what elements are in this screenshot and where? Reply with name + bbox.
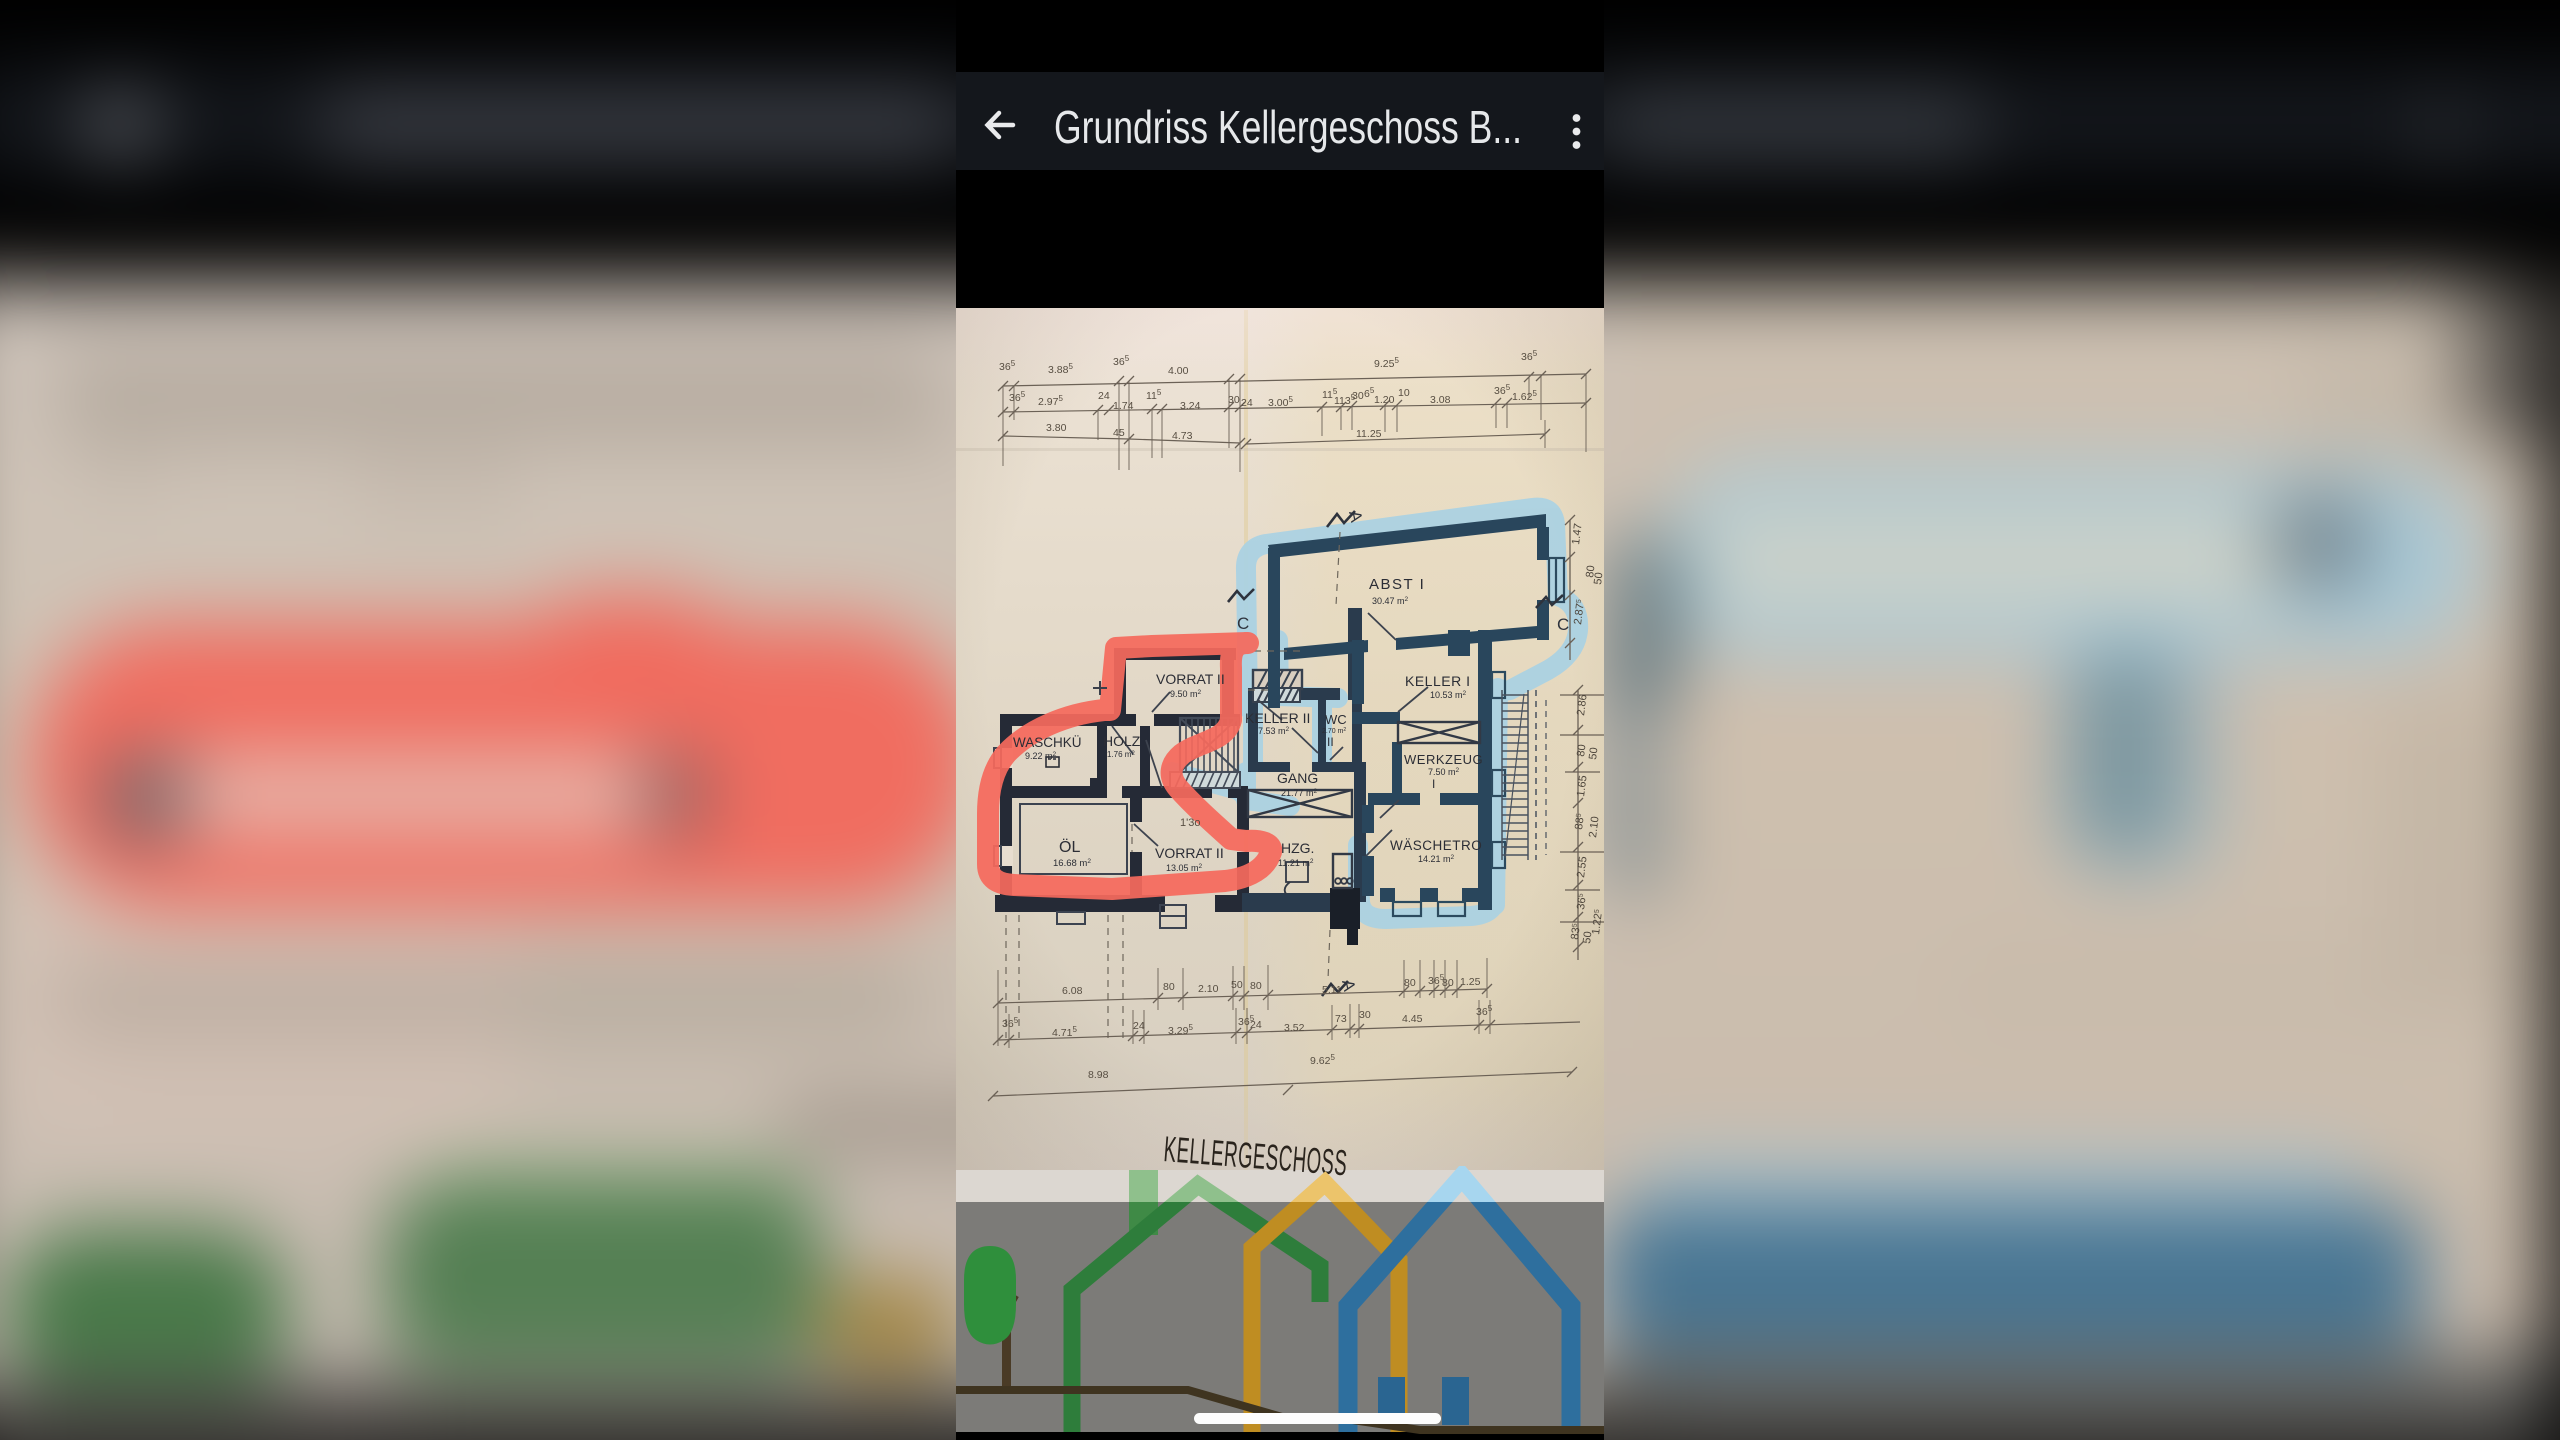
svg-text:ÖL: ÖL [1059,838,1080,856]
svg-text:9.22 m2: 9.22 m2 [1025,751,1057,761]
svg-text:13.05 m2: 13.05 m2 [1166,863,1203,873]
svg-text:30: 30 [1228,394,1240,406]
svg-text:5.11: 5.11 [1322,984,1342,996]
svg-text:WASCHKÜ: WASCHKÜ [1013,735,1082,750]
svg-text:Grundriss Kellergeschoss B...: Grundriss Kellergeschoss B... [1054,101,1522,153]
svg-text:21.77 m2: 21.77 m2 [1281,788,1318,798]
svg-text:30.47 m2: 30.47 m2 [1372,596,1409,606]
svg-text:45: 45 [1113,427,1125,439]
svg-text:VORRAT II: VORRAT II [1156,671,1225,687]
svg-text:7.53 m2: 7.53 m2 [1258,726,1290,736]
svg-text:6.08: 6.08 [1062,985,1083,997]
svg-text:4.73: 4.73 [1172,430,1193,442]
svg-text:8.98: 8.98 [1088,1069,1109,1081]
svg-text:80: 80 [1575,744,1588,758]
svg-text:80: 80 [1442,977,1454,989]
svg-text:10.53 m2: 10.53 m2 [1430,690,1467,700]
svg-text:ABST I: ABST I [1369,576,1425,593]
svg-text:3.08: 3.08 [1430,394,1451,406]
svg-text:80: 80 [1163,981,1175,993]
svg-text:1.76 m2: 1.76 m2 [1107,750,1135,759]
svg-text:50: 50 [1587,747,1600,761]
svg-text:GANG: GANG [1277,770,1318,786]
svg-text:80: 80 [1250,980,1262,992]
svg-text:11.25: 11.25 [1356,428,1382,440]
svg-text:1.20: 1.20 [1374,394,1395,406]
svg-text:3.24: 3.24 [1180,400,1201,412]
svg-text:80: 80 [1404,977,1416,989]
svg-text:3.52: 3.52 [1284,1022,1305,1034]
svg-text:HOLZ: HOLZ [1103,733,1141,749]
svg-text:4.45: 4.45 [1402,1013,1423,1025]
svg-text:73: 73 [1335,1013,1347,1025]
svg-text:1.74: 1.74 [1113,400,1134,412]
svg-text:1.25: 1.25 [1460,976,1481,988]
svg-text:7.50 m2: 7.50 m2 [1428,767,1460,777]
svg-text:30: 30 [1359,1009,1371,1021]
svg-text:24: 24 [1241,397,1253,409]
svg-text:HZG.: HZG. [1281,840,1314,856]
svg-text:KELLER I: KELLER I [1405,673,1470,689]
svg-text:WÄSCHETRO: WÄSCHETRO [1390,838,1482,853]
svg-text:2.70 m2: 2.70 m2 [1322,727,1346,735]
svg-text:VORRAT II: VORRAT II [1155,845,1224,861]
svg-text:16.68 m2: 16.68 m2 [1053,858,1091,869]
svg-text:10: 10 [1398,387,1410,399]
svg-text:24: 24 [1250,1019,1262,1031]
svg-text:1'3o: 1'3o [1180,817,1200,829]
svg-text:WERKZEUG: WERKZEUG [1404,752,1483,767]
svg-text:C: C [1557,615,1569,634]
svg-text:24: 24 [1098,390,1110,402]
svg-text:50: 50 [1231,979,1243,991]
svg-text:2.10: 2.10 [1198,983,1219,995]
svg-text:14.21 m2: 14.21 m2 [1418,854,1455,864]
svg-text:3.80: 3.80 [1046,422,1067,434]
svg-text:4.00: 4.00 [1168,365,1189,377]
svg-text:24: 24 [1133,1020,1145,1032]
svg-text:9.50 m2: 9.50 m2 [1170,689,1202,699]
svg-text:C: C [1237,614,1249,633]
svg-text:II: II [1327,735,1334,749]
svg-text:50: 50 [1592,572,1604,586]
svg-text:WC: WC [1325,712,1347,727]
svg-text:30: 30 [1352,390,1364,402]
svg-text:I: I [1432,777,1435,791]
svg-text:11.21 m2: 11.21 m2 [1278,858,1314,868]
svg-text:KELLER II: KELLER II [1245,710,1310,726]
